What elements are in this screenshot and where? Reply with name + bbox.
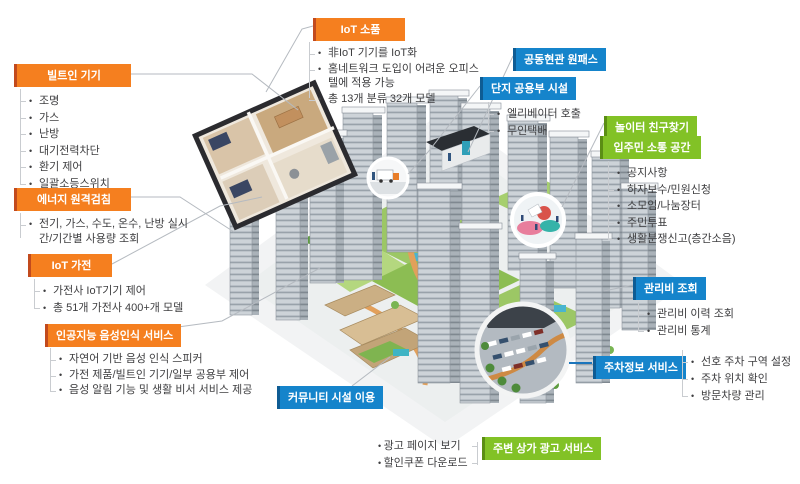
callout-title: 관리비 조회 — [633, 277, 706, 300]
callout-ai-voice-service: 인공지능 음성인식 서비스 자연어 기반 음성 인식 스피커 가전 제품/빌트인… — [45, 324, 252, 399]
callout-item: 가스 — [28, 110, 131, 127]
callout-title: 입주민 소통 공간 — [600, 136, 701, 159]
callout-items: 광고 페이지 보기 할인쿠폰 다운로드 — [378, 438, 470, 471]
callout-items: 가전사 IoT기기 제어 총 51개 가전사 400+개 모델 — [42, 283, 183, 316]
callout-title: 주차정보 서비스 — [593, 356, 686, 379]
callout-title: 빌트인 기기 — [14, 64, 131, 87]
callout-items: 자연어 기반 음성 인식 스피커 가전 제품/빌트인 기기/일부 공용부 제어 … — [58, 352, 252, 399]
callout-item: 非IoT 기기를 IoT화 — [317, 46, 483, 61]
callout-item: 관리비 이력 조회 — [646, 306, 734, 323]
callout-items: 엘리베이터 호출 무인택배 — [496, 106, 581, 139]
callout-title: IoT 가전 — [28, 254, 112, 277]
callout-energy-metering: 에너지 원격검침 전기, 가스, 수도, 온수, 난방 실시간/기간별 사용량 … — [14, 188, 201, 246]
callout-item: 가전사 IoT기기 제어 — [42, 283, 183, 300]
infographic-canvas: 빌트인 기기 조명 가스 난방 대기전력차단 환기 제어 일괄소등스위치 에너지… — [0, 0, 800, 484]
callout-items: 공지사항 하자보수/민원신청 소모임/나눔장터 주민투표 생활분쟁신고(층간소음… — [616, 165, 736, 248]
callout-title: IoT 소품 — [313, 18, 405, 41]
callout-item: 생활분쟁신고(층간소음) — [616, 231, 736, 248]
playground-inset — [511, 193, 565, 247]
complex-scene — [190, 50, 690, 450]
callout-title: 커뮤니티 시설 이용 — [277, 386, 383, 409]
callout-items: 선호 주차 구역 설정 주차 위치 확인 방문차량 관리 — [690, 354, 791, 405]
callout-iot-appliances: IoT 가전 가전사 IoT기기 제어 총 51개 가전사 400+개 모델 — [28, 254, 183, 316]
callout-item: 엘리베이터 호출 — [496, 106, 581, 123]
callout-resident-communication: 입주민 소통 공간 공지사항 하자보수/민원신청 소모임/나눔장터 주민투표 생… — [600, 136, 736, 248]
callout-title: 단지 공용부 시설 — [480, 77, 576, 100]
callout-item: 주차 위치 확인 — [690, 371, 791, 388]
callout-items: 非IoT 기기를 IoT화 홈네트워크 도입이 어려운 오피스텔에 적용 가능 … — [317, 46, 483, 106]
callout-title: 에너지 원격검침 — [14, 188, 131, 211]
callout-item: 하자보수/민원신청 — [616, 182, 736, 199]
callout-item: 가전 제품/빌트인 기기/일부 공용부 제어 — [58, 368, 252, 384]
callout-item: 광고 페이지 보기 — [378, 438, 470, 455]
callout-items: 조명 가스 난방 대기전력차단 환기 제어 일괄소등스위치 — [28, 93, 131, 192]
delivery-truck-inset — [367, 157, 410, 199]
callout-item: 전기, 가스, 수도, 온수, 난방 실시간/기간별 사용량 조회 — [28, 217, 201, 246]
callout-item: 선호 주차 구역 설정 — [690, 354, 791, 371]
callout-management-fee: 관리비 조회 관리비 이력 조회 관리비 통계 — [633, 277, 734, 339]
callout-community-facility: 커뮤니티 시설 이용 — [277, 386, 383, 409]
callout-common-facilities: 단지 공용부 시설 엘리베이터 호출 무인택배 — [480, 77, 581, 139]
callout-item: 자연어 기반 음성 인식 스피커 — [58, 352, 252, 368]
callout-items: 전기, 가스, 수도, 온수, 난방 실시간/기간별 사용량 조회 — [28, 217, 201, 246]
callout-item: 공지사항 — [616, 165, 736, 182]
callout-item: 난방 — [28, 126, 131, 143]
callout-item: 총 13개 분류 32개 모델 — [317, 92, 483, 107]
callout-item: 음성 알림 기능 및 생활 비서 서비스 제공 — [58, 383, 252, 399]
callout-item: 환기 제어 — [28, 159, 131, 176]
callout-item: 관리비 통계 — [646, 323, 734, 340]
apartment-complex-illustration — [190, 50, 690, 450]
callout-entrance-onepass: 공동현관 원패스 — [513, 48, 606, 71]
callout-iot-accessories: IoT 소품 非IoT 기기를 IoT화 홈네트워크 도입이 어려운 오피스텔에… — [313, 18, 483, 107]
callout-item: 할인쿠폰 다운로드 — [378, 455, 470, 472]
callout-item: 무인택배 — [496, 123, 581, 140]
callout-item: 총 51개 가전사 400+개 모델 — [42, 300, 183, 317]
callout-items: 관리비 이력 조회 관리비 통계 — [646, 306, 734, 339]
callout-item: 홈네트워크 도입이 어려운 오피스텔에 적용 가능 — [317, 62, 483, 91]
callout-item: 주민투표 — [616, 215, 736, 232]
callout-parking-info: 주차정보 서비스 선호 주차 구역 설정 주차 위치 확인 방문차량 관리 — [593, 356, 686, 379]
callout-item: 조명 — [28, 93, 131, 110]
callout-builtin-devices: 빌트인 기기 조명 가스 난방 대기전력차단 환기 제어 일괄소등스위치 — [14, 64, 131, 192]
callout-item: 대기전력차단 — [28, 143, 131, 160]
callout-title: 공동현관 원패스 — [513, 48, 606, 71]
callout-title: 주변 상가 광고 서비스 — [482, 437, 601, 460]
callout-title: 인공지능 음성인식 서비스 — [45, 324, 181, 347]
callout-item: 소모임/나눔장터 — [616, 198, 736, 215]
callout-item: 방문차량 관리 — [690, 388, 791, 405]
